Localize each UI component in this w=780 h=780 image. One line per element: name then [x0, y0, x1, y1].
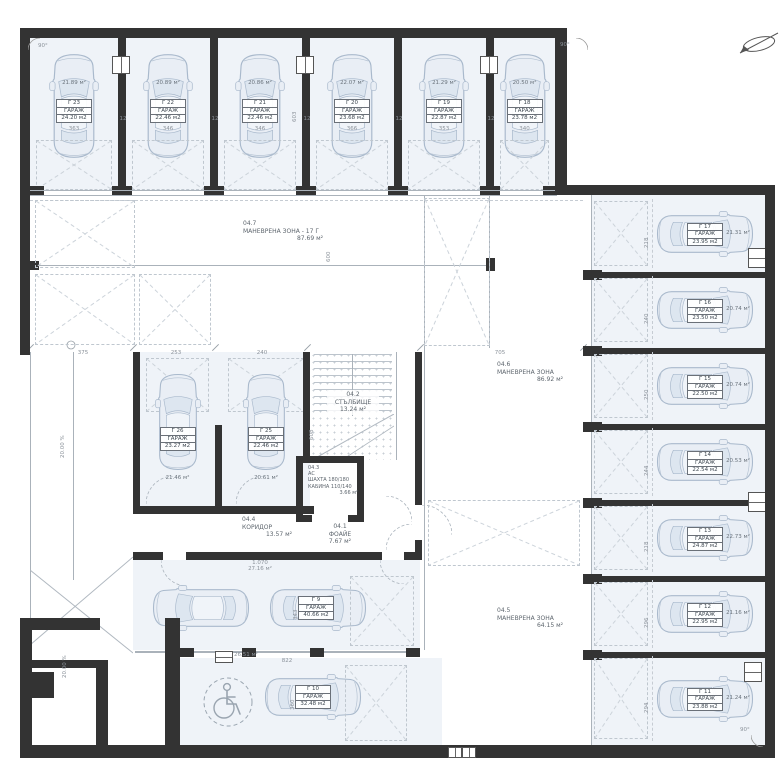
ramp-slope-label: 20.00 %	[62, 655, 68, 678]
dimension-tick	[417, 344, 424, 351]
line	[30, 195, 557, 196]
maneuver-box	[350, 576, 414, 646]
zone-label-04-5: 04.5 МАНЕВРЕНА ЗОНА 64.15 м²	[497, 607, 563, 630]
dimension-label: 346	[153, 126, 183, 133]
maneuver-box	[316, 140, 388, 190]
angle-arc-icon	[28, 38, 40, 50]
dashed-line	[652, 504, 653, 572]
dashed-line	[652, 580, 653, 648]
garage-area: 40.66 м2	[298, 611, 334, 620]
car-icon	[240, 372, 292, 472]
wall	[348, 515, 364, 522]
free-area-label: 20.89 м²	[138, 80, 198, 88]
parking-level-plan: 21.89 м² Г 23 ГАРАЖ 24.20 м2363 20.89 м²…	[0, 0, 780, 780]
maneuver-box	[345, 665, 407, 741]
garage-label: Г 22 ГАРАЖ 22.46 м2	[150, 99, 186, 123]
zone-label-04-7: 04.7 МАНЕВРЕНА ЗОНА - 17 Г 87.69 м²	[243, 220, 323, 243]
garage-label: Г 23 ГАРАЖ 24.20 м2	[56, 99, 92, 123]
maneuver-box	[224, 140, 296, 190]
dimension-tick	[304, 344, 311, 351]
garage-area: 22.95 м2	[687, 618, 723, 627]
maneuver-box	[500, 140, 549, 190]
dimension-tick	[212, 344, 219, 351]
floor-plan: { "zones": { "z47": {"code":"04.7","name…	[0, 0, 780, 780]
dimension-label: 600	[326, 252, 332, 263]
garage-area: 32.48 м2	[295, 700, 331, 709]
free-area-label: 22.73 м²	[716, 534, 760, 542]
zone-name: МАНЕВРЕНА ЗОНА	[497, 369, 563, 377]
door-niche	[112, 56, 130, 74]
zone-area: 7.67 м²	[318, 538, 362, 546]
wall-dim: 12	[393, 116, 405, 123]
garage-label: Г 19 ГАРАЖ 22.87 м2	[426, 99, 462, 123]
north-arrow-icon	[732, 26, 780, 62]
garage-area: 22.46 м2	[248, 442, 284, 451]
door-niche	[748, 492, 766, 512]
zone-code: 04.5	[497, 607, 563, 615]
dimension-label: 603	[292, 112, 298, 123]
wall	[165, 618, 180, 745]
zone-name: СТЪЛБИЩЕ	[329, 399, 377, 407]
zone-name: МАНЕВРЕНА ЗОНА - 17 Г	[243, 228, 323, 236]
dimension-label: 608	[309, 430, 315, 441]
zone-name: ФОАЙЕ	[318, 531, 362, 539]
free-area-label: 21.31 м²	[716, 230, 760, 238]
ramp-lines	[30, 545, 133, 660]
line	[30, 190, 557, 191]
maneuver-box	[428, 500, 580, 566]
free-area-label: 21.24 м²	[716, 695, 760, 703]
garage-area: 22.87 м2	[426, 114, 462, 123]
wall	[96, 660, 108, 745]
dimension-label: 822	[272, 658, 302, 664]
dimension-label: 363	[59, 126, 89, 133]
garage-area: 23.95 м2	[687, 238, 723, 247]
wall	[133, 552, 163, 560]
dimension-label: 296	[644, 618, 650, 629]
wall	[394, 38, 402, 188]
ramp-slope-label: 20.00 %	[60, 435, 66, 458]
garage-label: Г 25 ГАРАЖ 22.46 м2	[248, 427, 284, 451]
garage-area: 22.50 м2	[687, 390, 723, 399]
zone-area: 3.66 м²	[308, 490, 358, 496]
garage-label: Г 9 ГАРАЖ 40.66 м2	[298, 596, 334, 620]
dimension-label: 346	[245, 126, 275, 133]
wall	[186, 552, 382, 560]
garage-label: Г 21 ГАРАЖ 22.46 м2	[242, 99, 278, 123]
dimension-label: 360	[290, 700, 296, 711]
free-area-label: 21.89 м²	[44, 80, 104, 88]
garage-label: Г 26 ГАРАЖ 23.27 м2	[160, 427, 196, 451]
wall	[20, 28, 30, 355]
dashed-line	[652, 656, 653, 741]
wall	[303, 352, 310, 456]
dimension-label: 250	[644, 390, 650, 401]
wall	[296, 456, 303, 522]
maneuver-box	[139, 274, 211, 345]
zone-code: 04.6	[497, 361, 563, 369]
door-niche	[448, 747, 462, 758]
wall	[555, 28, 567, 195]
free-area-label: 21.29 м²	[414, 80, 474, 88]
car-icon	[148, 583, 254, 633]
angle-annotation: 90°	[560, 42, 570, 48]
wall	[180, 745, 775, 758]
dimension-label: 240	[247, 350, 277, 356]
zone-code: 04.7	[243, 220, 323, 228]
wall-dim: 12	[209, 116, 221, 123]
zone-area: 86.92 м²	[497, 376, 563, 384]
stair-section-lines	[312, 414, 394, 460]
zone-label-corridor: 04.4 КОРИДОР 13.57 м²	[242, 516, 292, 539]
dimension-label: 294	[644, 702, 650, 713]
free-area-label: 20.74 м²	[716, 382, 760, 390]
zone-name: МАНЕВРЕНА ЗОНА	[497, 615, 563, 623]
maneuver-box	[424, 198, 490, 346]
wall	[210, 38, 218, 188]
maneuver-box	[594, 278, 648, 342]
garage-area: 23.50 м2	[687, 314, 723, 323]
zone-detail: КАБИНА 110/140	[308, 484, 358, 490]
door-niche	[462, 747, 476, 758]
dashed-line	[652, 276, 653, 344]
maneuver-box	[35, 200, 135, 268]
zone-code: 04.1	[318, 523, 362, 531]
free-area-label: 20.74 м²	[716, 306, 760, 314]
dimension-label: 353	[429, 126, 459, 133]
zone-area: 64.15 м²	[497, 622, 563, 630]
free-area-label: 20.50 м²	[495, 80, 555, 88]
garage-area: 22.46 м2	[150, 114, 186, 123]
zone-area: 13.24 м²	[329, 406, 377, 414]
dimension-label: 366	[337, 126, 367, 133]
wall	[310, 648, 324, 657]
door-swing-arc	[236, 476, 264, 504]
zone-label-foyer: 04.1 ФОАЙЕ 7.67 м²	[318, 523, 362, 546]
garage-area: 24.87 м2	[687, 542, 723, 551]
car-icon	[152, 372, 204, 472]
garage-area: 23.27 м2	[160, 442, 196, 451]
wall	[20, 618, 100, 630]
area-annotation: 26.51 м²	[234, 652, 258, 658]
door-niche	[748, 248, 766, 268]
wall-dim: 12	[485, 116, 497, 123]
garage-area: 22.46 м2	[242, 114, 278, 123]
dashed-line	[652, 199, 653, 268]
wall	[30, 672, 54, 698]
wall	[133, 352, 140, 512]
door-niche	[296, 56, 314, 74]
zone-label-04-6: 04.6 МАНЕВРЕНА ЗОНА 86.92 м²	[497, 361, 563, 384]
wall	[765, 185, 775, 758]
dimension-label: 218	[644, 542, 650, 553]
dimension-label: 253	[161, 350, 191, 356]
wall	[415, 352, 422, 505]
wall	[357, 456, 364, 522]
wall	[20, 28, 565, 38]
wall	[180, 648, 194, 657]
line	[396, 352, 397, 460]
dimension-label: 343	[293, 610, 299, 621]
door-swing-arc	[386, 524, 412, 550]
angle-arc-icon	[576, 38, 588, 50]
free-area-label: 20.86 м²	[230, 80, 290, 88]
dashed-line	[652, 428, 653, 496]
wheelchair-icon	[202, 676, 254, 728]
dimension-label: 218	[644, 237, 650, 248]
wall	[406, 648, 420, 657]
maneuver-box	[594, 506, 648, 570]
garage-label: Г 10 ГАРАЖ 32.48 м2	[295, 685, 331, 709]
zone-name: КОРИДОР	[242, 524, 292, 532]
wall	[296, 515, 312, 522]
angle-arc-icon	[751, 735, 763, 747]
wall	[296, 456, 364, 463]
maneuver-box	[132, 140, 204, 190]
zone-code: 04.2	[329, 391, 377, 399]
dimension-label: 340	[510, 126, 540, 133]
wall-dim: 12	[117, 116, 129, 123]
door-niche	[215, 651, 233, 663]
garage-area: 23.68 м2	[334, 114, 370, 123]
wall	[555, 185, 775, 195]
maneuver-box	[594, 430, 648, 494]
maneuver-box	[594, 658, 648, 739]
garage-area: 23.88 м2	[687, 703, 723, 712]
zone-label-elevator: 04.3 АС ШАХТА 180/180 КАБИНА 110/140 3.6…	[308, 465, 358, 496]
area-annotation: 27.16 м²	[240, 566, 280, 572]
zone-label-stairs: 04.2 СТЪЛБИЩЕ 13.24 м²	[327, 390, 379, 415]
garage-label: Г 18 ГАРАЖ 23.78 м2	[507, 99, 543, 123]
free-area-label: 20.53 м²	[716, 458, 760, 466]
maneuver-box	[594, 201, 648, 266]
door-swing-arc	[386, 496, 412, 522]
free-area-label: 22.07 м²	[322, 80, 382, 88]
dimension-label: 244	[644, 466, 650, 477]
maneuver-box	[36, 140, 112, 190]
garage-area: 23.78 м2	[507, 114, 543, 123]
garage-area: 22.54 м2	[687, 466, 723, 475]
zone-code: 04.4	[242, 516, 292, 524]
maneuver-box	[35, 274, 135, 345]
wall	[215, 425, 222, 512]
maneuver-box	[408, 140, 480, 190]
door-niche	[744, 662, 762, 682]
maneuver-box	[594, 354, 648, 418]
garage-area: 24.20 м2	[56, 114, 92, 123]
dashed-line	[652, 352, 653, 420]
zone-area: 13.57 м²	[242, 531, 292, 539]
dimension-label: 705	[485, 350, 515, 356]
door-swing-arc	[146, 476, 174, 504]
garage-label: Г 20 ГАРАЖ 23.68 м2	[334, 99, 370, 123]
maneuver-box	[594, 582, 648, 646]
wall	[133, 506, 314, 514]
dimension-label: 375	[68, 350, 98, 356]
wall-dim: 12	[301, 116, 313, 123]
wall	[20, 745, 180, 758]
wall	[415, 540, 422, 560]
zone-area: 87.69 м²	[243, 235, 323, 243]
free-area-label: 21.16 м²	[716, 610, 760, 618]
angle-annotation: 90°	[740, 727, 750, 733]
door-niche	[480, 56, 498, 74]
dimension-label: 240	[644, 314, 650, 325]
